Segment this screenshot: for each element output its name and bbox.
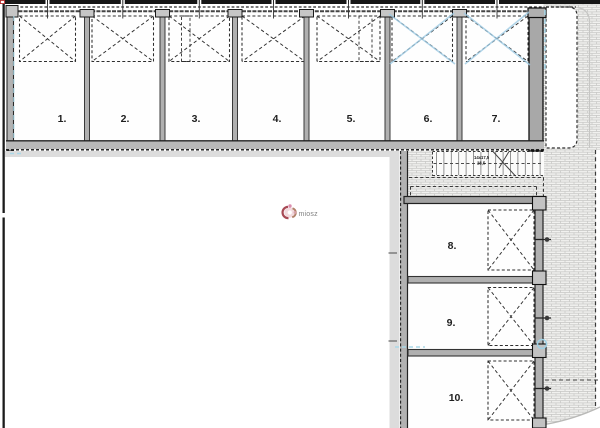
- svg-text:5.: 5.: [347, 113, 356, 125]
- svg-text:8.: 8.: [448, 240, 457, 252]
- svg-text:6.: 6.: [424, 113, 433, 125]
- svg-text:3.: 3.: [192, 113, 201, 125]
- svg-text:4.: 4.: [273, 113, 282, 125]
- svg-text:2.: 2.: [121, 113, 130, 125]
- svg-text:28,5: 28,5: [477, 161, 486, 166]
- svg-text:10.: 10.: [449, 392, 464, 404]
- svg-text:14x17,5: 14x17,5: [474, 155, 490, 160]
- svg-text:7.: 7.: [492, 113, 501, 125]
- svg-text:1.: 1.: [58, 113, 67, 125]
- svg-text:9.: 9.: [447, 317, 456, 329]
- svg-text:miosz: miosz: [299, 211, 319, 218]
